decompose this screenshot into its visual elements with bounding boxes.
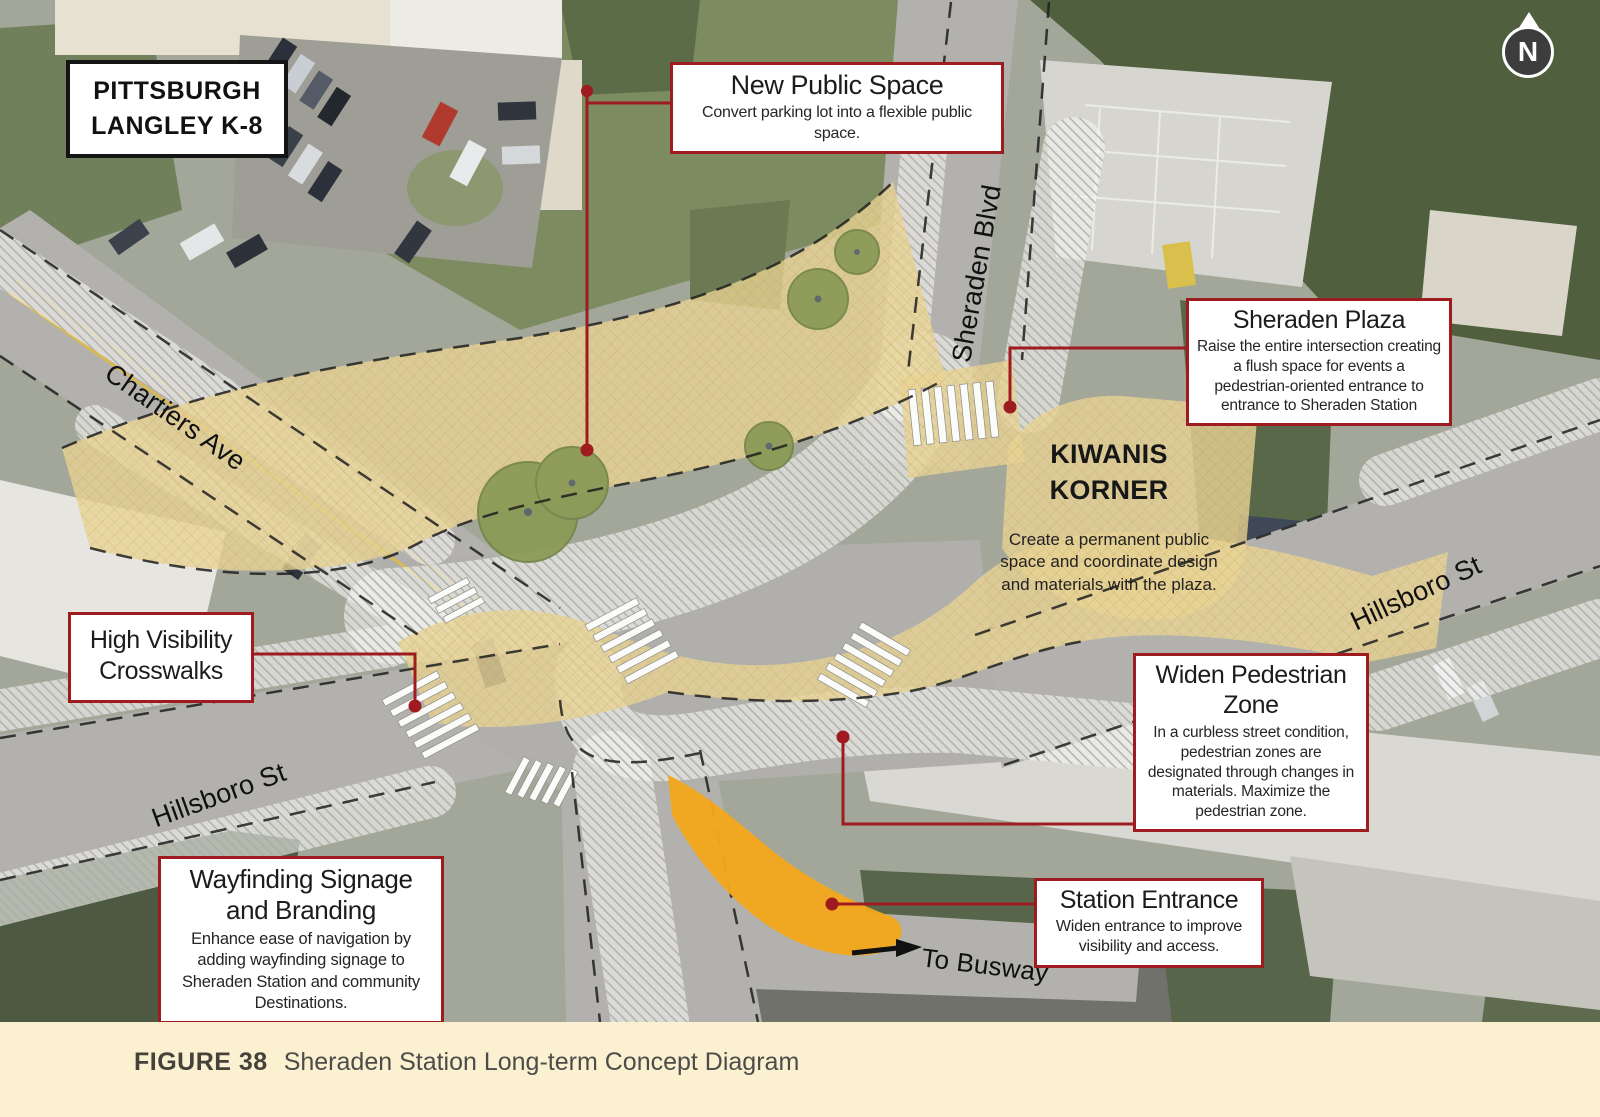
callout-body: Raise the entire intersection creating a…: [1197, 337, 1441, 416]
callout-title: New Public Space: [681, 70, 993, 100]
callout-widen-pedestrian-zone: Widen Pedestrian Zone In a curbless stre…: [1133, 653, 1369, 832]
callout-wayfinding-signage: Wayfinding Signage and Branding Enhance …: [158, 856, 444, 1024]
callout-body: Widen entrance to improve visibility and…: [1045, 917, 1253, 958]
school-label-line2: LANGLEY K-8: [91, 112, 263, 140]
callout-new-public-space: New Public Space Convert parking lot int…: [670, 62, 1004, 154]
callout-body: In a curbless street condition, pedestri…: [1144, 723, 1358, 822]
figure-title: Sheraden Station Long-term Concept Diagr…: [284, 1048, 800, 1076]
north-arrow-icon: N: [1499, 12, 1559, 76]
callout-title: Wayfinding Signage and Branding: [169, 864, 433, 926]
north-letter: N: [1502, 26, 1554, 78]
kiwanis-korner-label: KIWANIS KORNER Create a permanent public…: [986, 436, 1232, 596]
callout-title: High Visibility Crosswalks: [79, 625, 243, 688]
callout-high-visibility-crosswalks: High Visibility Crosswalks: [68, 612, 254, 703]
figure-caption-band: FIGURE 38Sheraden Station Long-term Conc…: [0, 1022, 1600, 1117]
callout-body: Convert parking lot into a flexible publ…: [681, 103, 993, 144]
callout-station-entrance: Station Entrance Widen entrance to impro…: [1034, 878, 1264, 968]
school-label-line1: PITTSBURGH: [93, 77, 261, 105]
figure-38-concept-diagram: PITTSBURGH LANGLEY K-8 New Public Space …: [0, 0, 1600, 1117]
callout-body: Enhance ease of navigation by adding way…: [169, 929, 433, 1013]
kiwanis-korner-body: Create a permanent public space and coor…: [986, 529, 1232, 596]
callout-title: Widen Pedestrian Zone: [1144, 661, 1358, 720]
school-label-pittsburgh-langley: PITTSBURGH LANGLEY K-8: [66, 60, 288, 158]
figure-caption: FIGURE 38Sheraden Station Long-term Conc…: [134, 1048, 799, 1077]
callout-title: Station Entrance: [1045, 886, 1253, 914]
callout-title: Sheraden Plaza: [1197, 306, 1441, 334]
callout-sheraden-plaza: Sheraden Plaza Raise the entire intersec…: [1186, 298, 1452, 426]
kiwanis-korner-title: KIWANIS KORNER: [986, 436, 1232, 509]
figure-number: FIGURE 38: [134, 1048, 268, 1076]
